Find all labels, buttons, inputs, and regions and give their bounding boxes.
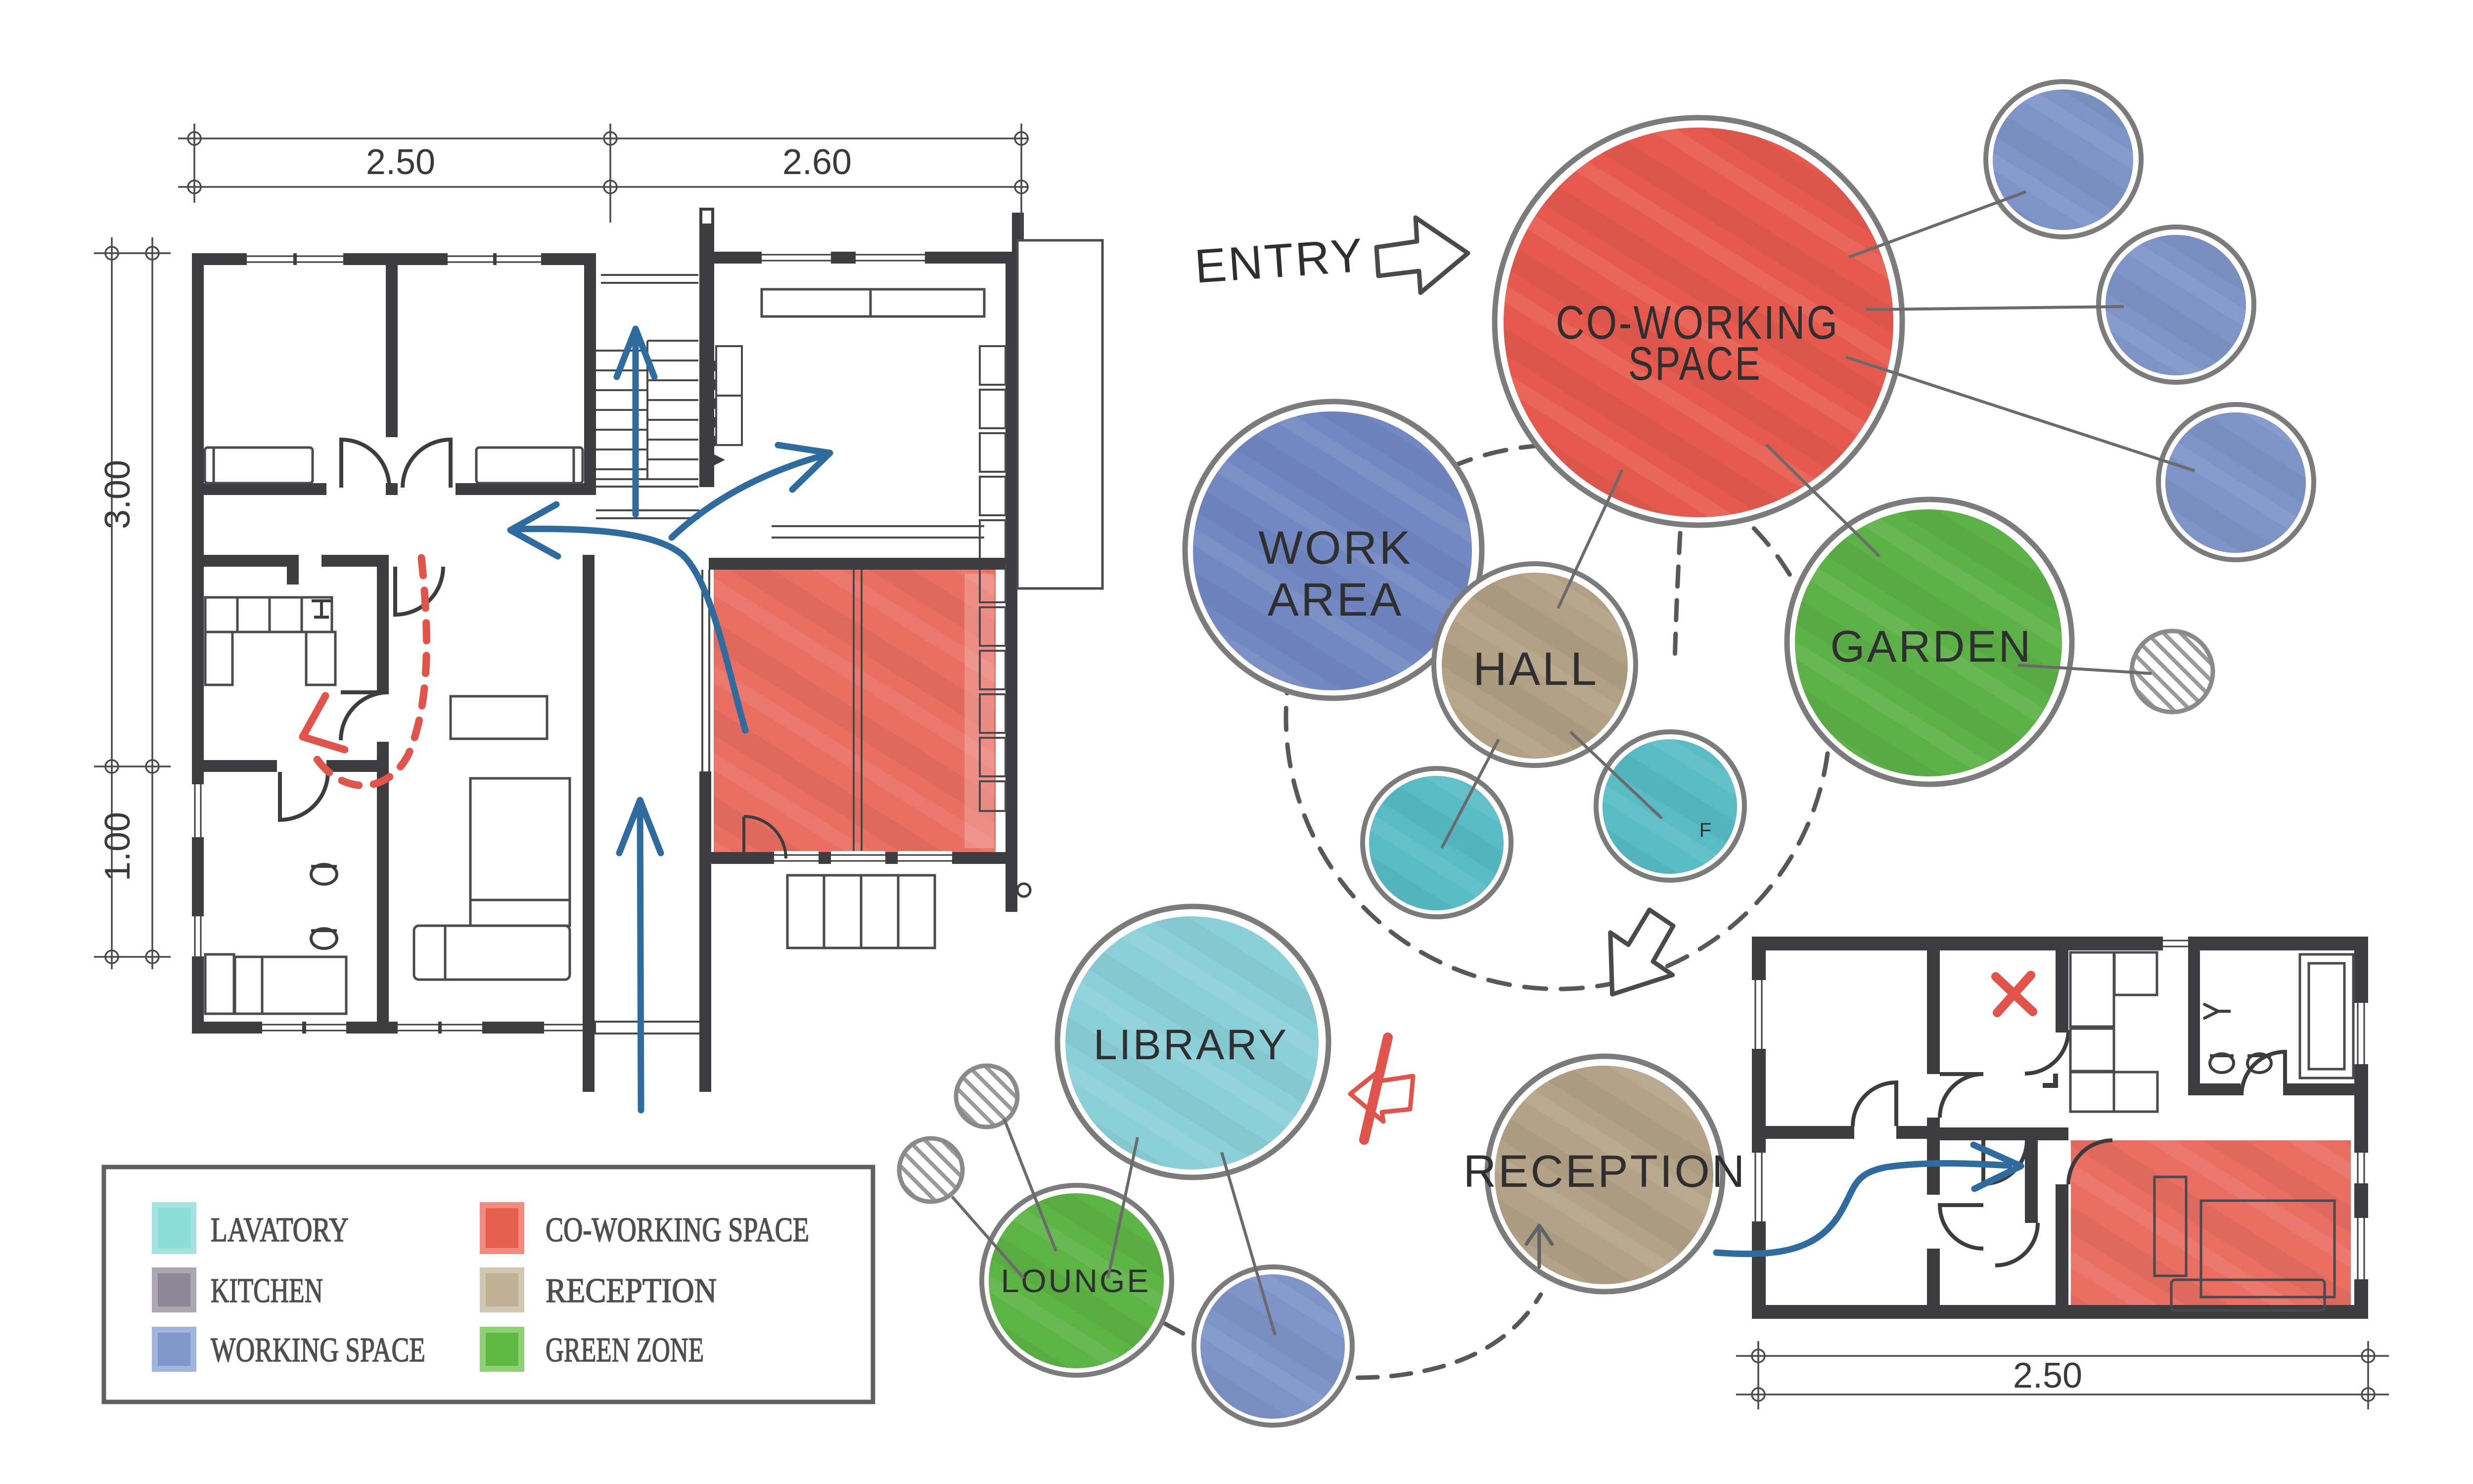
svg-text:WORKING SPACE: WORKING SPACE: [211, 1331, 425, 1369]
svg-text:GREEN ZONE: GREEN ZONE: [546, 1331, 704, 1369]
svg-text:RECEPTION: RECEPTION: [1464, 1146, 1747, 1197]
svg-text:F: F: [1699, 819, 1713, 841]
svg-text:GARDEN: GARDEN: [1830, 622, 2032, 672]
svg-text:HALL: HALL: [1473, 643, 1599, 695]
svg-text:WORK: WORK: [1258, 522, 1413, 574]
svg-text:AREA: AREA: [1268, 574, 1404, 626]
svg-text:LOUNGE: LOUNGE: [1001, 1262, 1151, 1299]
svg-text:LAVATORY: LAVATORY: [211, 1211, 349, 1249]
svg-text:3.00: 3.00: [98, 460, 137, 529]
svg-text:KITCHEN: KITCHEN: [211, 1272, 323, 1310]
svg-text:1.00: 1.00: [98, 812, 137, 881]
svg-text:2.50: 2.50: [2013, 1356, 2082, 1395]
svg-text:SPACE: SPACE: [1628, 337, 1762, 390]
svg-text:CO-WORKING SPACE: CO-WORKING SPACE: [546, 1211, 809, 1249]
svg-text:LIBRARY: LIBRARY: [1094, 1021, 1288, 1069]
svg-text:2.60: 2.60: [782, 142, 852, 182]
svg-text:2.50: 2.50: [366, 142, 435, 182]
svg-text:RECEPTION: RECEPTION: [546, 1272, 717, 1310]
